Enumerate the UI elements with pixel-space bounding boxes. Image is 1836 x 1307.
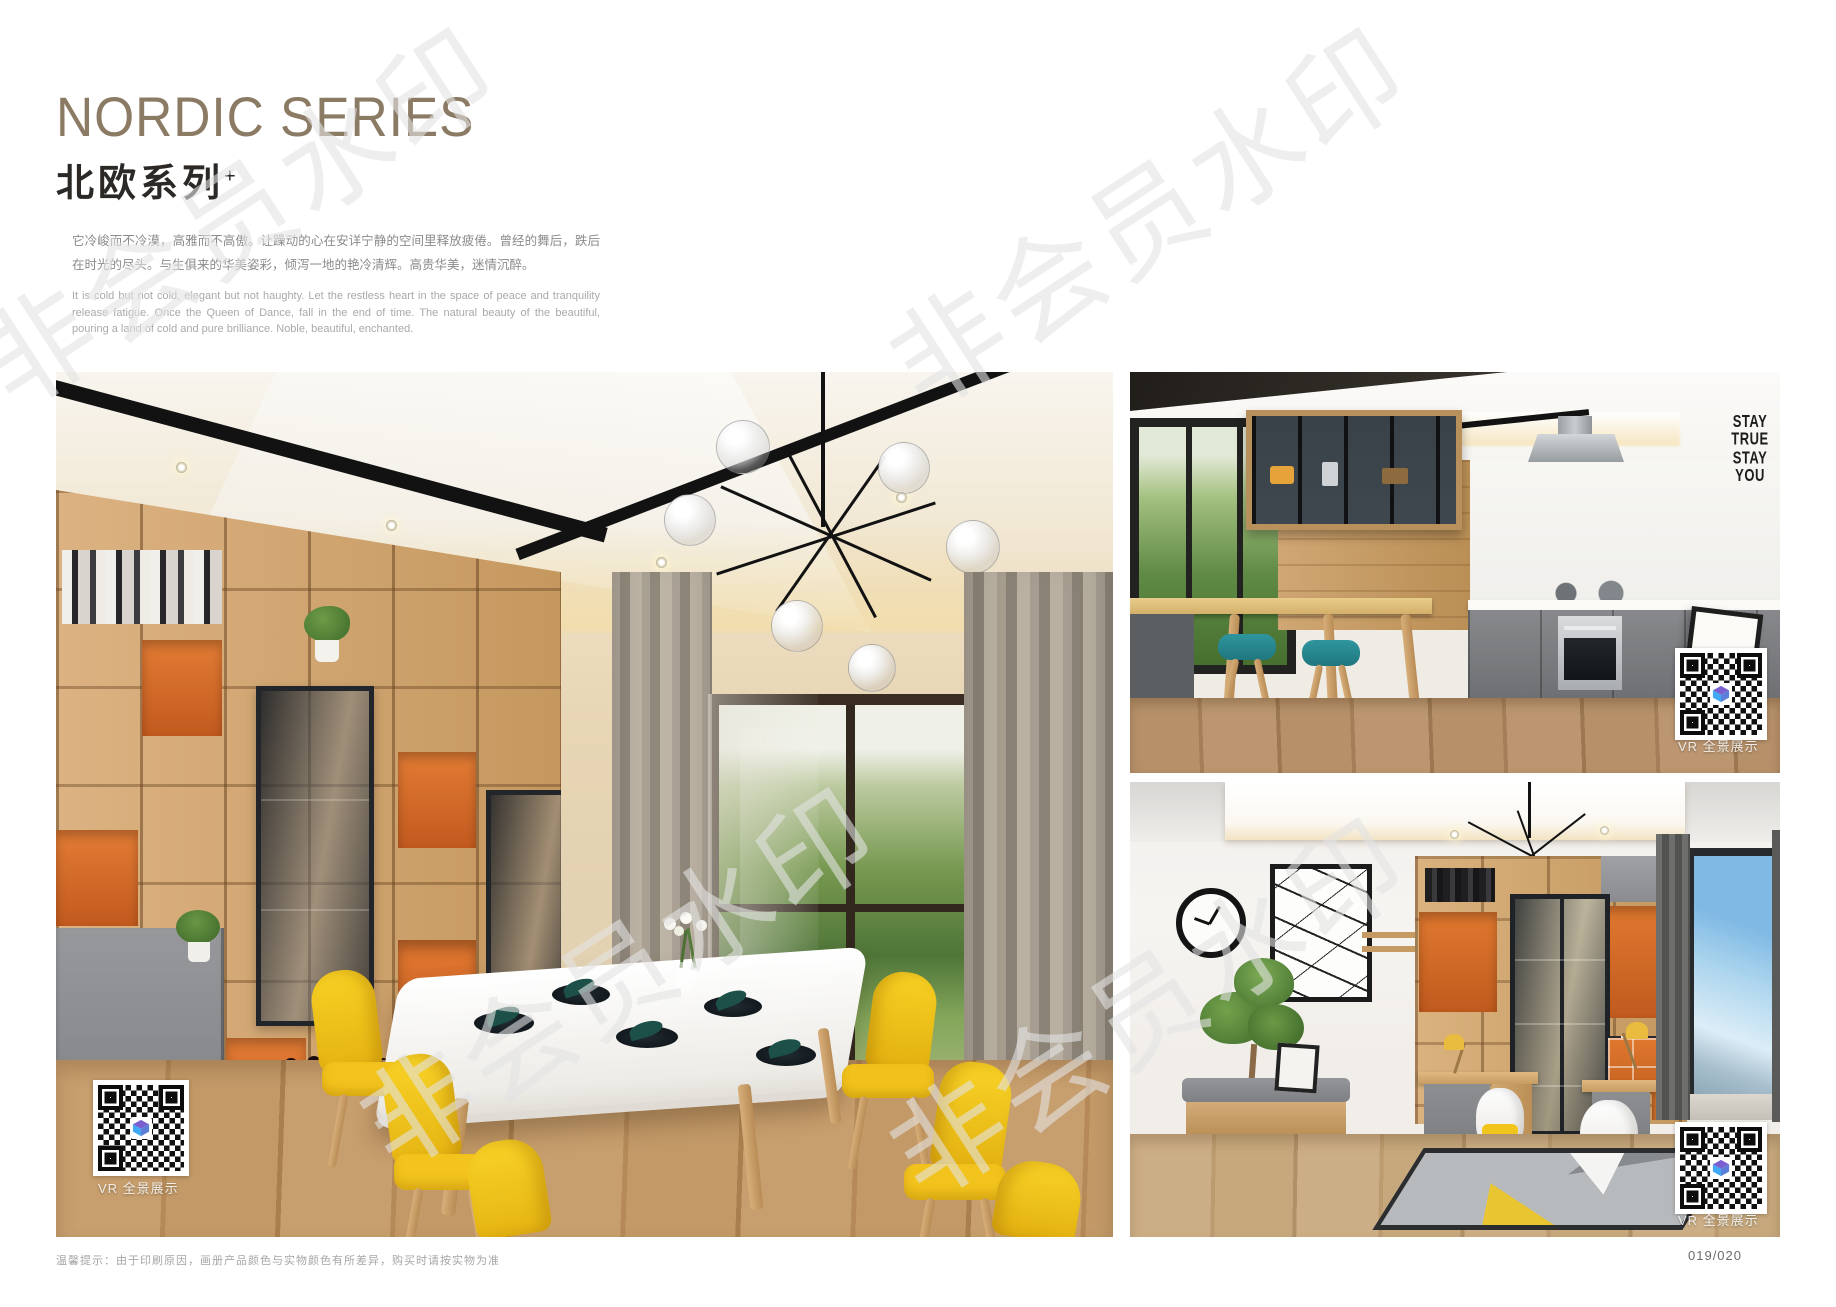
place-setting (474, 1008, 534, 1034)
qr-eye (1680, 653, 1705, 678)
vr-label: VR 全景展示 (98, 1178, 179, 1197)
chair-leg (328, 1094, 349, 1168)
qr-eye (159, 1085, 184, 1110)
chandelier-globe (878, 442, 930, 494)
chair-back (379, 1050, 463, 1167)
qr-pattern (1680, 1127, 1762, 1209)
subtitle-text: 北欧系列 (56, 163, 224, 205)
flower-vase (652, 912, 722, 992)
place-setting (756, 1040, 816, 1066)
lamp-shade (1626, 1022, 1648, 1039)
plant-leaves (304, 606, 350, 642)
flower-bloom (696, 920, 707, 931)
glass-shelf-line (261, 909, 369, 911)
chandelier-arm (775, 455, 886, 612)
lamp-shade (1444, 1034, 1464, 1050)
built-in-oven (1558, 616, 1622, 690)
light-bulb (1450, 830, 1459, 839)
stool-seat (1218, 634, 1276, 660)
ceiling-spotlight (386, 520, 397, 531)
plant-pot (315, 640, 339, 662)
place-setting (704, 992, 762, 1017)
qr-eye (1680, 1127, 1705, 1152)
clock-hand (1194, 917, 1210, 925)
vr-label: VR 全景展示 (1678, 736, 1759, 755)
photo-dining-room: VR 全景展示 (56, 372, 1113, 1237)
dining-chair-yellow (956, 1162, 1106, 1237)
page-title: NORDIC SERIES (56, 84, 474, 149)
cabinet-shelf-line (1515, 959, 1605, 961)
potted-plant (176, 910, 222, 964)
cabinet-shelf-line (1515, 1023, 1605, 1025)
shelf-cell-orange (56, 830, 138, 926)
chair-leg (401, 1188, 423, 1237)
ceiling-spotlight (176, 462, 187, 473)
chandelier-globe (664, 494, 716, 546)
hood-duct (1558, 416, 1592, 434)
vr-qr-code (93, 1080, 189, 1176)
desk-lamp (1600, 1022, 1656, 1070)
shelf-books (1425, 868, 1495, 902)
dark-curtain (1772, 830, 1780, 1122)
qr-pattern (98, 1085, 184, 1171)
wall-clock (1176, 888, 1246, 958)
cabinet-item-orange (1270, 466, 1294, 484)
subtitle-plus: + (224, 165, 240, 187)
shelf-books (62, 550, 222, 624)
chandelier-globe (771, 600, 823, 652)
qr-eye (1680, 1184, 1705, 1209)
bench-cushion (1182, 1078, 1350, 1102)
cabinet-item (1382, 468, 1408, 484)
qr-cube-logo (1710, 683, 1732, 705)
leaning-frames (1274, 1043, 1319, 1094)
wall-shelf (1362, 932, 1420, 938)
cabinet-mullion (1560, 899, 1564, 1131)
study-window (1686, 848, 1780, 1110)
description-english: It is cold but not cold, elegant but not… (72, 288, 600, 338)
dining-chair-yellow (460, 1140, 600, 1237)
plant-leaves (176, 910, 220, 944)
oven-glass (1564, 638, 1616, 680)
page-number: 019/020 (1688, 1248, 1742, 1263)
qr-cube-logo (1710, 1157, 1732, 1179)
stool-seat (1302, 640, 1360, 666)
chair-back (864, 968, 940, 1075)
qr-eye (1680, 710, 1705, 735)
qr-cube-logo (130, 1117, 152, 1139)
photo-study-room: VR 全景展示 (1130, 782, 1780, 1237)
chandelier-stem (821, 372, 825, 527)
chair-leg (913, 1198, 935, 1237)
qr-eye (98, 1085, 123, 1110)
oven-handle (1564, 626, 1616, 630)
window-seat (1678, 1094, 1780, 1120)
bar-cabinet (1130, 614, 1194, 700)
chair-back (990, 1156, 1085, 1237)
potted-plant (302, 606, 352, 664)
footer-disclaimer: 温馨提示：由于印刷原因，画册产品颜色与实物颜色有所差异，购买时请按实物为准 (56, 1252, 500, 1268)
dark-curtain (1656, 834, 1690, 1120)
vase-glass (676, 962, 696, 992)
cooktop-pots (1548, 580, 1638, 602)
chandelier-arm (720, 485, 931, 581)
hanging-cabinet (1246, 410, 1462, 530)
bar-counter-top (1130, 598, 1432, 614)
wall-quote: STAY TRUE STAY YOU (1726, 412, 1774, 484)
light-bulb (1600, 826, 1609, 835)
qr-eye (1737, 1127, 1762, 1152)
hood-body (1528, 434, 1624, 462)
shelf-cell-orange (1419, 912, 1497, 1012)
shelf-cell-orange (142, 640, 222, 736)
page-subtitle: 北欧系列+ (56, 152, 240, 207)
plant-pot (188, 942, 210, 962)
qr-eye (98, 1146, 123, 1171)
chandelier-globe (716, 420, 770, 474)
description-chinese: 它冷峻而不冷漠，高雅而不高傲。让躁动的心在安详宁静的空间里释放疲倦。曾经的舞后，… (72, 230, 600, 278)
chair-back (308, 966, 384, 1073)
qr-eye (1737, 653, 1762, 678)
cabinet-item (1322, 462, 1338, 486)
catalog-page: NORDIC SERIES 北欧系列+ 它冷峻而不冷漠，高雅而不高傲。让躁动的心… (0, 0, 1836, 1307)
flower-bloom (680, 912, 692, 924)
plant-leaves (1234, 958, 1294, 1006)
shelf-cell-orange (398, 752, 476, 848)
chandelier-globe (946, 520, 1000, 574)
photo-kitchen: STAY TRUE STAY YOU VR 全景展示 (1130, 372, 1780, 773)
glass-shelf-line (261, 799, 369, 801)
vr-label: VR 全景展示 (1678, 1210, 1759, 1229)
vr-qr-code (1675, 648, 1767, 740)
desk-lamp (1436, 1034, 1486, 1074)
place-setting (616, 1022, 678, 1048)
chair-leg (848, 1096, 869, 1170)
place-setting (552, 980, 610, 1005)
bench-base (1186, 1102, 1346, 1134)
chair-back (929, 1058, 1016, 1177)
light-stem (1528, 782, 1531, 838)
flower-bloom (674, 926, 684, 936)
chair-back (463, 1135, 553, 1237)
chandelier-globe (848, 644, 896, 692)
range-hood (1528, 416, 1624, 464)
kitchen-counter (1468, 600, 1780, 610)
qr-pattern (1680, 653, 1762, 735)
vr-qr-code (1675, 1122, 1767, 1214)
